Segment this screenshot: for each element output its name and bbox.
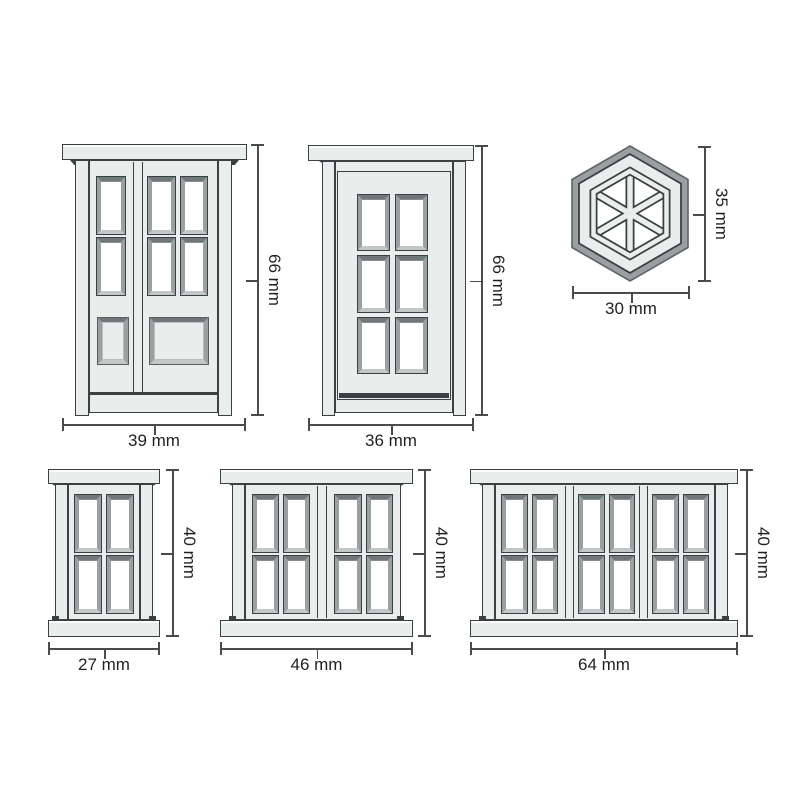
glass-pane <box>148 177 175 234</box>
double-door-right-pane-grid <box>148 177 207 295</box>
dim-tick <box>698 146 711 148</box>
wide-window-right-jamb <box>715 484 728 620</box>
hexagonal-window-figure <box>571 145 689 282</box>
glass-pane <box>533 495 558 552</box>
dim-tick <box>246 280 257 282</box>
single-door-pane-grid <box>358 195 427 373</box>
dim-tick <box>470 281 481 283</box>
wide-window-width-dimension: 64 mm <box>470 648 738 650</box>
wide-window-pane-grid-2 <box>579 495 634 613</box>
glass-pane <box>653 495 678 552</box>
dim-tick <box>693 214 704 216</box>
wide-window-height-dimension: 40 mm <box>746 469 748 637</box>
hex-window-height-label: 35 mm <box>711 188 731 240</box>
dim-tick <box>688 286 690 299</box>
medium-window-left-jamb <box>232 484 245 620</box>
double-door-height-label: 66 mm <box>264 254 284 306</box>
double-door-right-panel <box>150 318 208 364</box>
wide-window-mullion-1 <box>565 486 574 618</box>
small-window-width-dimension: 27 mm <box>48 648 160 650</box>
dim-tick <box>735 553 746 555</box>
glass-pane <box>253 556 278 613</box>
single-door-right-jamb <box>453 161 466 416</box>
glass-pane <box>610 495 635 552</box>
glass-pane <box>284 556 309 613</box>
medium-window-sill <box>220 620 413 637</box>
wide-window-width-label: 64 mm <box>578 655 630 675</box>
double-door-width-dimension: 39 mm <box>62 424 246 426</box>
glass-pane <box>284 495 309 552</box>
wide-window-lintel <box>470 469 738 484</box>
medium-window-figure <box>220 469 413 637</box>
glass-pane <box>502 556 527 613</box>
glass-pane <box>335 556 361 613</box>
glass-pane <box>396 318 427 373</box>
wide-window-figure <box>470 469 738 637</box>
double-door-right-jamb <box>218 160 232 416</box>
wide-window-pane-grid-3 <box>653 495 708 613</box>
small-window-width-label: 27 mm <box>78 655 130 675</box>
medium-window-left-pane-grid <box>253 495 309 613</box>
dim-tick <box>736 642 738 655</box>
medium-window-height-dimension: 40 mm <box>424 469 426 637</box>
hex-window-width-dimension: 30 mm <box>572 292 690 294</box>
small-window-pane-grid <box>75 495 133 613</box>
small-window-left-jamb <box>55 484 68 620</box>
glass-pane <box>253 495 278 552</box>
dim-tick <box>411 642 413 655</box>
dim-tick <box>251 144 264 146</box>
double-door-left-panel <box>98 318 128 364</box>
single-door-bottom-rail-line <box>339 393 449 398</box>
dim-tick <box>158 642 160 655</box>
glass-pane <box>335 495 361 552</box>
wide-window-mullion-2 <box>639 486 648 618</box>
medium-window-lintel <box>220 469 413 484</box>
dim-tick <box>166 635 179 637</box>
double-door-center-stile <box>133 162 143 393</box>
glass-pane <box>75 495 101 552</box>
glass-pane <box>579 556 604 613</box>
small-window-right-jamb <box>140 484 153 620</box>
dim-tick <box>308 418 310 431</box>
small-window-lintel <box>48 469 160 484</box>
glass-pane <box>653 556 678 613</box>
glass-pane <box>358 318 389 373</box>
medium-window-mullion <box>317 486 327 618</box>
wide-window-left-jamb <box>482 484 495 620</box>
wide-window-height-label: 40 mm <box>753 527 773 579</box>
medium-window-width-label: 46 mm <box>291 655 343 675</box>
double-door-left-pane-grid <box>97 177 125 295</box>
dim-tick <box>418 469 431 471</box>
glass-pane <box>684 556 709 613</box>
dim-tick <box>418 635 431 637</box>
dim-tick <box>161 553 172 555</box>
glass-pane <box>502 495 527 552</box>
single-door-figure <box>308 145 474 416</box>
dim-tick <box>470 642 472 655</box>
small-window-figure <box>48 469 160 637</box>
double-door-left-jamb <box>75 160 89 416</box>
small-window-sill <box>48 620 160 637</box>
dim-tick <box>740 635 753 637</box>
dim-tick <box>475 414 488 416</box>
hex-window-width-label: 30 mm <box>605 299 657 319</box>
double-door-height-dimension: 66 mm <box>257 144 259 416</box>
small-window-height-label: 40 mm <box>179 527 199 579</box>
dim-tick <box>472 418 474 431</box>
hex-window-height-dimension: 35 mm <box>704 146 706 282</box>
wide-window-sill <box>470 620 738 637</box>
glass-pane <box>684 495 709 552</box>
dim-tick <box>48 642 50 655</box>
glass-pane <box>396 195 427 250</box>
glass-pane <box>396 256 427 311</box>
glass-pane <box>75 556 101 613</box>
medium-window-right-pane-grid <box>335 495 392 613</box>
small-window-height-dimension: 40 mm <box>172 469 174 637</box>
double-door-bottom-rail-line <box>89 392 218 395</box>
dim-tick <box>251 414 264 416</box>
single-door-lintel <box>308 145 474 161</box>
dim-tick <box>698 280 711 282</box>
dim-tick <box>166 469 179 471</box>
dim-tick <box>220 642 222 655</box>
glass-pane <box>358 256 389 311</box>
dim-tick <box>475 145 488 147</box>
hexagonal-window-drawing <box>571 145 689 282</box>
single-door-width-dimension: 36 mm <box>308 424 474 426</box>
double-door-lintel <box>62 144 247 160</box>
dim-tick <box>62 418 64 431</box>
single-door-height-label: 66 mm <box>488 255 508 307</box>
glass-pane <box>358 195 389 250</box>
glass-pane <box>107 495 133 552</box>
dim-tick <box>740 469 753 471</box>
single-door-left-jamb <box>322 161 335 416</box>
glass-pane <box>97 238 125 295</box>
dim-tick <box>244 418 246 431</box>
glass-pane <box>97 177 125 234</box>
glass-pane <box>579 495 604 552</box>
double-door-figure <box>62 144 247 416</box>
medium-window-width-dimension: 46 mm <box>220 648 413 650</box>
miniature-doors-windows-diagram: 39 mm 66 mm 36 mm 66 mm <box>0 0 800 800</box>
single-door-width-label: 36 mm <box>365 431 417 451</box>
glass-pane <box>148 238 175 295</box>
double-door-width-label: 39 mm <box>128 431 180 451</box>
single-door-height-dimension: 66 mm <box>481 145 483 416</box>
medium-window-height-label: 40 mm <box>431 527 451 579</box>
glass-pane <box>610 556 635 613</box>
glass-pane <box>107 556 133 613</box>
dim-tick <box>413 553 424 555</box>
glass-pane <box>367 495 393 552</box>
dim-tick <box>572 286 574 299</box>
glass-pane <box>367 556 393 613</box>
glass-pane <box>181 238 208 295</box>
wide-window-pane-grid-1 <box>502 495 557 613</box>
glass-pane <box>181 177 208 234</box>
glass-pane <box>533 556 558 613</box>
